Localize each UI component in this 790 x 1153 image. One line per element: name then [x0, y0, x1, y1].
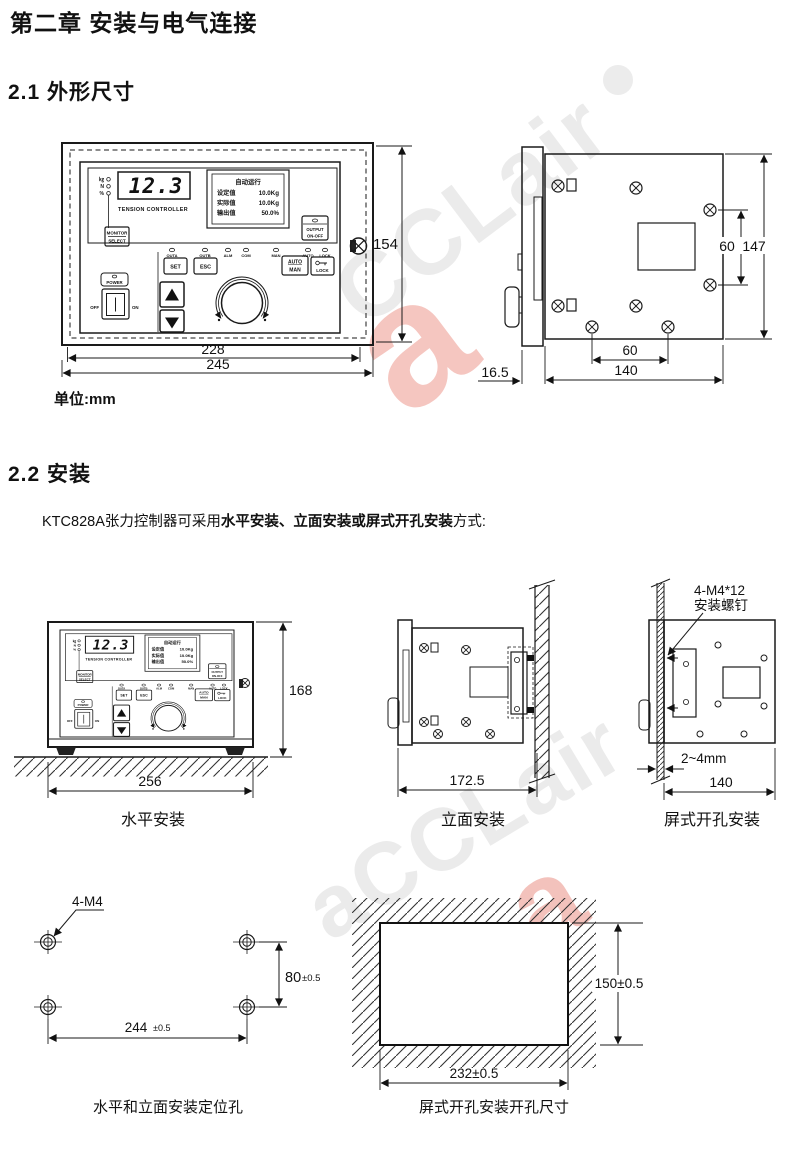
foot-left — [56, 747, 76, 755]
dim-depth-172-5: 172.5 — [449, 772, 484, 788]
dim-hole-244: 244 — [125, 1020, 148, 1035]
mount-holes-drawing: 4-M4 80 ±0.5 244 ±0.5 — [34, 894, 320, 1044]
chapter-title: 第二章 安装与电气连接 — [10, 4, 257, 38]
dim-hole-80-tol: ±0.5 — [302, 973, 320, 984]
intro-pre: KTC828A张力控制器可采用 — [42, 514, 221, 530]
foot-right — [225, 747, 245, 755]
dim-width-140: 140 — [709, 774, 733, 790]
dim-width-228: 228 — [201, 341, 225, 357]
screw-callout-line2: 安装螺钉 — [694, 598, 748, 613]
panel-cutout-mount-drawing: 4-M4*12 安装螺钉 2~4mm 140 — [637, 579, 775, 800]
rear-cutout — [470, 667, 508, 697]
caption-mount-holes: 水平和立面安装定位孔 — [68, 1096, 268, 1117]
wall-hatch — [535, 585, 549, 778]
front-view-drawing: 154 228 245 — [62, 143, 412, 377]
dim-height-168: 168 — [289, 682, 313, 698]
cutout-size-drawing: 150±0.5 232±0.5 — [352, 898, 646, 1090]
dim-hole-244-tol: ±0.5 — [153, 1023, 170, 1033]
dim-hole-80: 80 — [285, 970, 301, 986]
dim-bezel-16-5: 16.5 — [481, 364, 508, 380]
caption-panel-mount: 屏式开孔安装 — [612, 806, 790, 830]
case-screw — [350, 238, 367, 254]
caption-vertical-mount: 立面安装 — [373, 806, 573, 830]
dim-panel-thickness: 2~4mm — [681, 751, 726, 766]
caption-cutout-size: 屏式开孔安装开孔尺寸 — [394, 1096, 594, 1117]
rear-cutout — [723, 667, 760, 698]
side-view-drawing: 60 147 60 140 16.5 — [478, 147, 772, 384]
intro-post: 方式: — [453, 514, 486, 530]
vertical-mount-drawing: 172.5 — [388, 580, 555, 797]
intro-paragraph: KTC828A张力控制器可采用水平安装、立面安装或屏式开孔安装方式: — [42, 510, 486, 531]
thin-panel-hatch — [657, 583, 664, 780]
unit-note: 单位:mm — [54, 388, 116, 409]
dim-hole-spacing-60h: 60 — [622, 343, 637, 358]
dim-depth-140: 140 — [614, 362, 638, 378]
horizontal-mount-drawing: 168 256 — [14, 622, 313, 798]
cutout-opening — [380, 923, 568, 1045]
dim-width-245: 245 — [206, 356, 230, 372]
caption-horizontal-mount: 水平安装 — [53, 806, 253, 830]
manual-page: CCLair a aCCLair a 第二章 安装与电气连接 2.1 外形尺寸 … — [0, 0, 790, 1153]
section-2-2-title: 2.2 安装 — [8, 458, 91, 488]
side-knob — [505, 287, 522, 327]
intro-bold: 水平安装、立面安装或屏式开孔安装 — [221, 514, 453, 530]
rear-cutout — [638, 223, 695, 270]
dim-cutout-232: 232±0.5 — [450, 1066, 499, 1081]
dim-hole-spacing-60v: 60 — [719, 238, 735, 254]
mount-bracket — [667, 649, 696, 717]
dim-width-256: 256 — [138, 773, 162, 789]
section-2-1-title: 2.1 外形尺寸 — [8, 76, 135, 106]
dim-height-154: 154 — [373, 236, 398, 253]
dim-height-147: 147 — [742, 238, 766, 254]
mini-case-screw — [239, 679, 250, 689]
dim-cutout-150: 150±0.5 — [595, 976, 644, 991]
mount-bracket — [508, 647, 534, 718]
holes-callout-4-m4: 4-M4 — [72, 894, 103, 909]
screw-callout-line1: 4-M4*12 — [694, 583, 745, 598]
